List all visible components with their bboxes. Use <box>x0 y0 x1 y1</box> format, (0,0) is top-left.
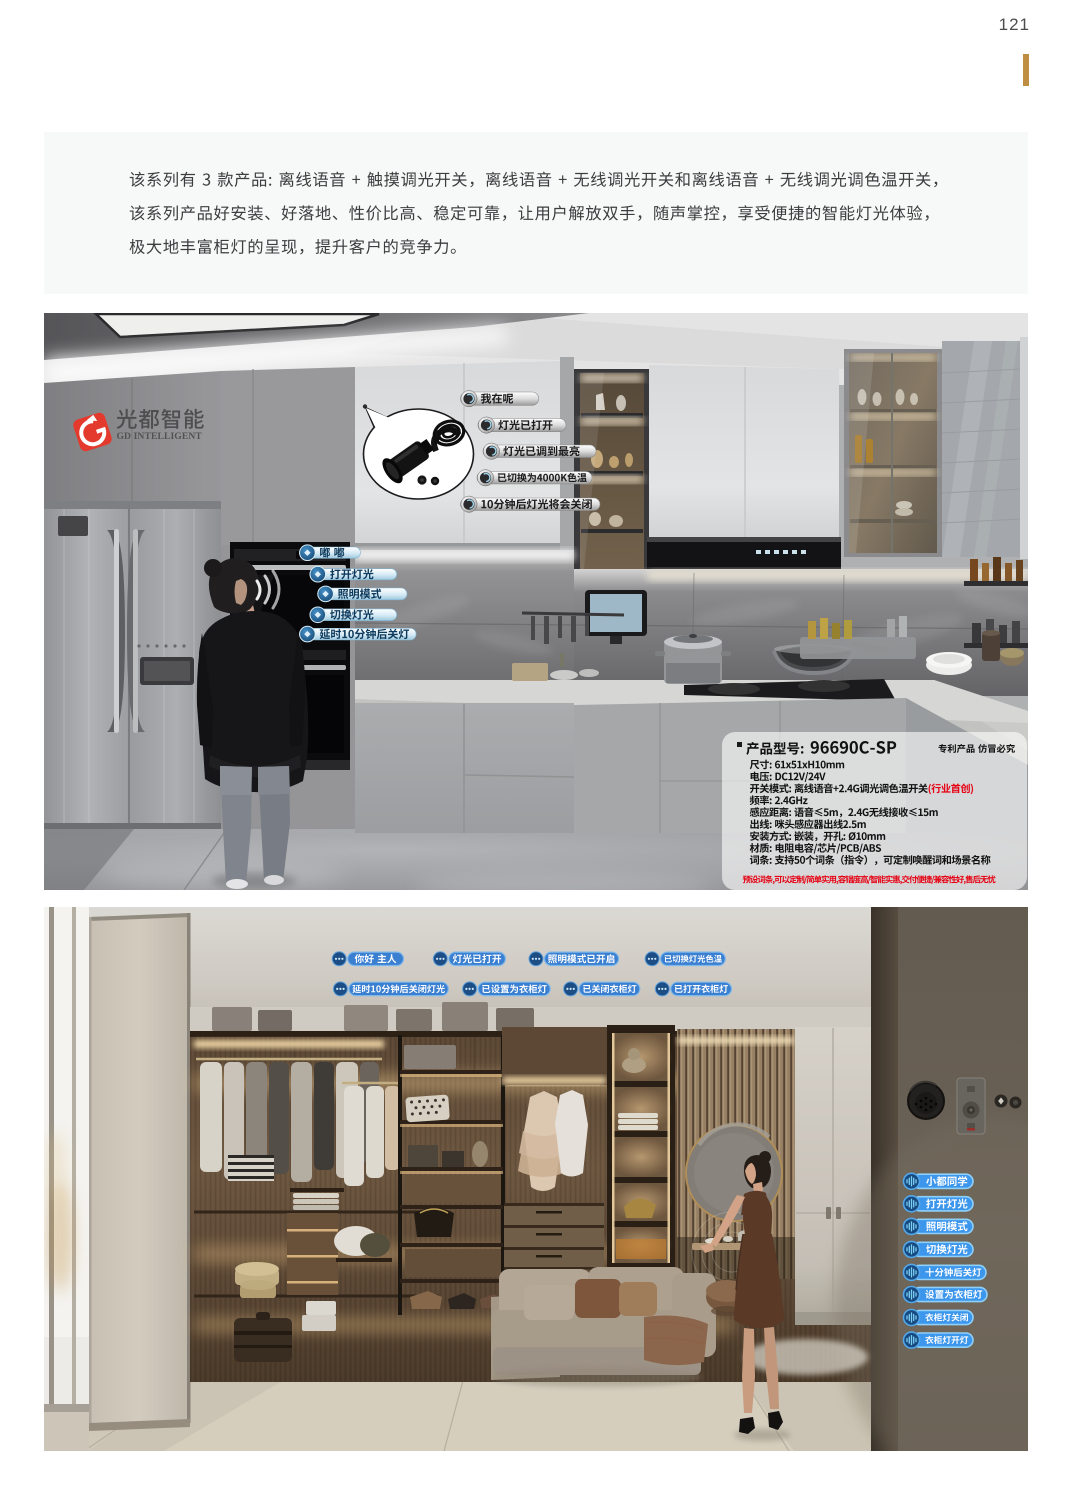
svg-text:GD INTELLIGENT: GD INTELLIGENT <box>117 431 203 442</box>
